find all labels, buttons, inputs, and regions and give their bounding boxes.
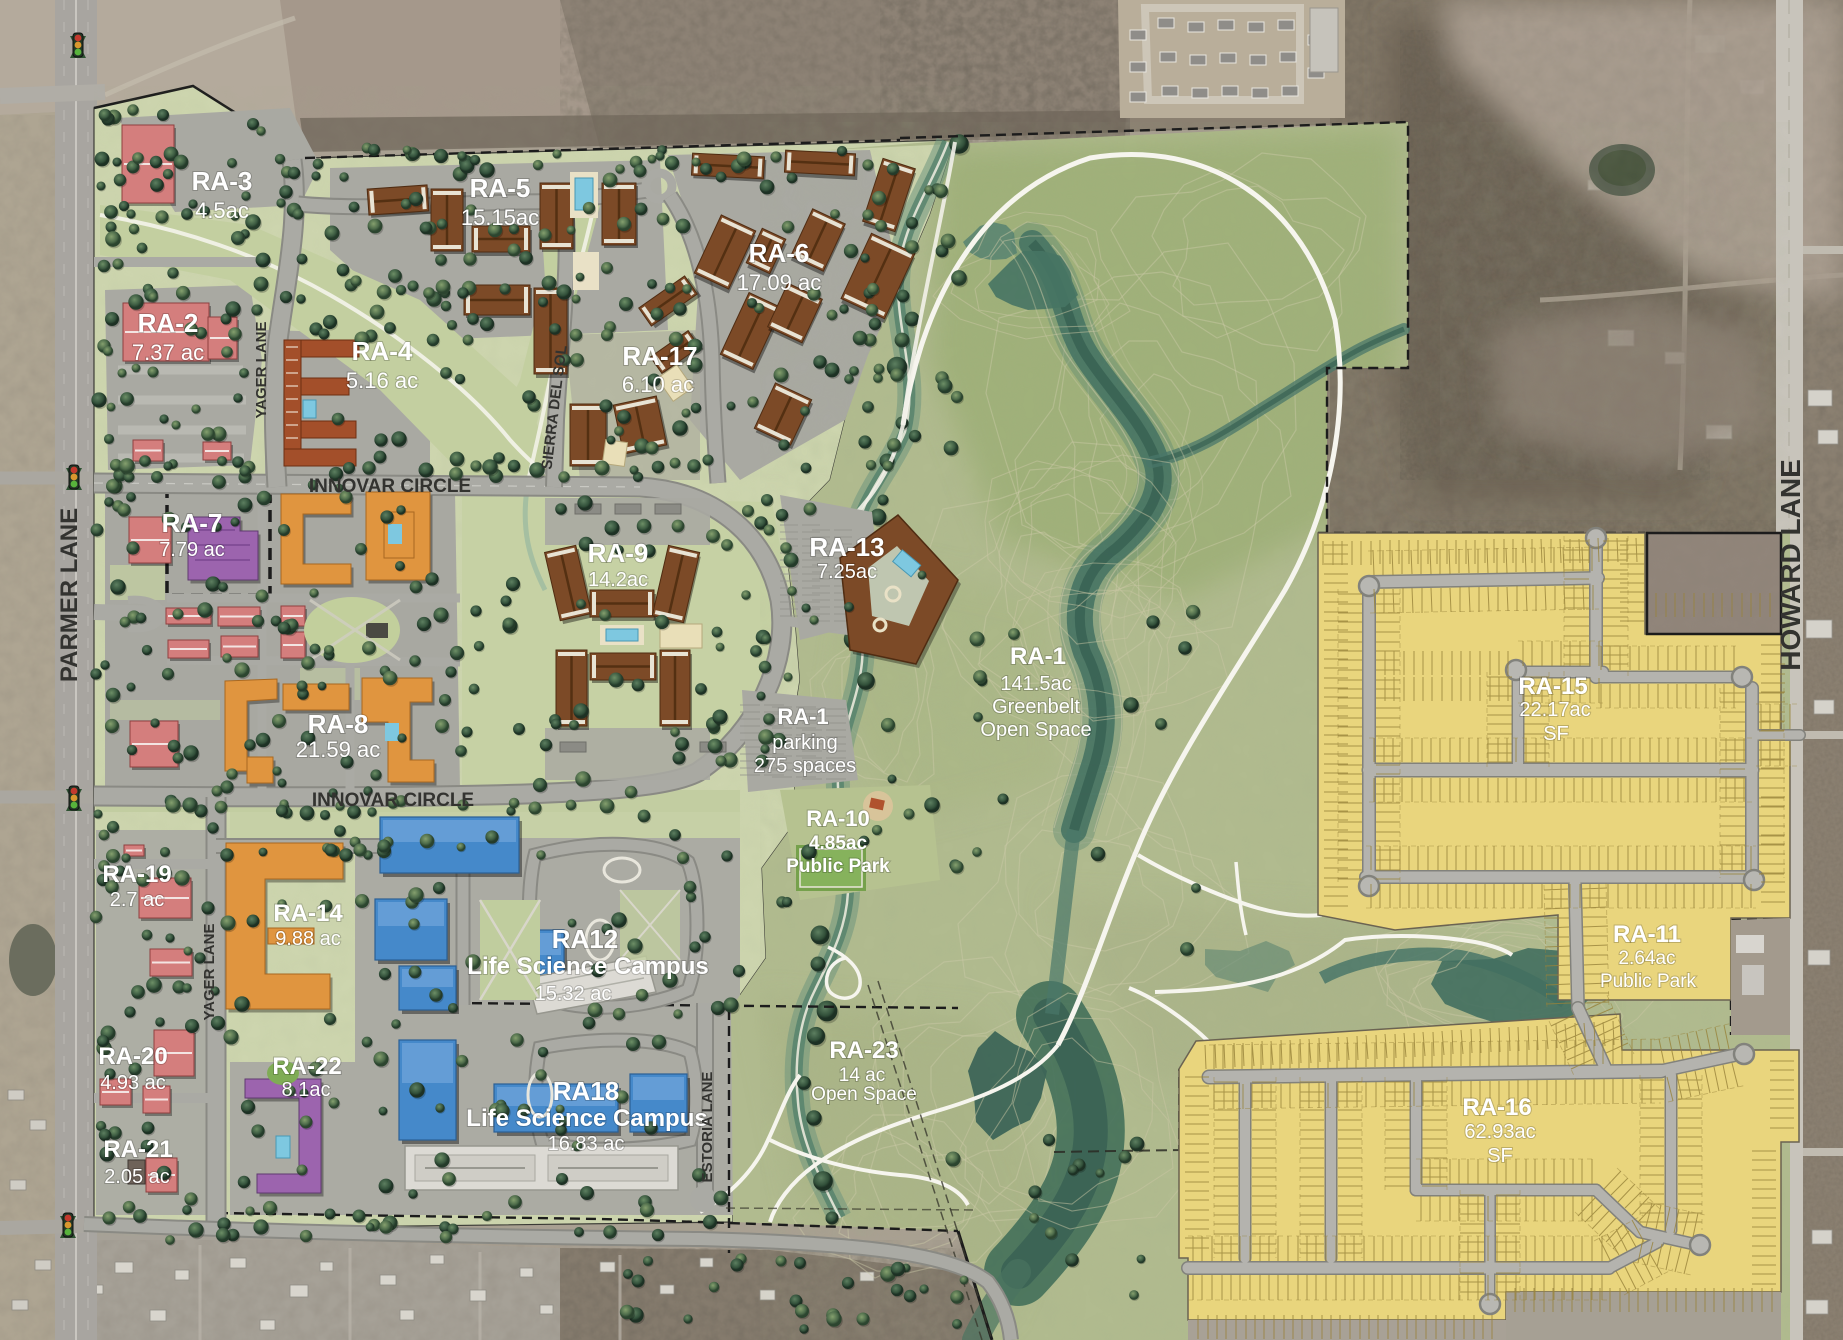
svg-text:7.37 ac: 7.37 ac <box>132 340 204 365</box>
svg-text:RA-13: RA-13 <box>809 532 884 562</box>
svg-text:8.1ac: 8.1ac <box>282 1079 331 1101</box>
svg-text:RA-23: RA-23 <box>829 1037 898 1064</box>
svg-text:Life Science Campus: Life Science Campus <box>467 953 708 980</box>
svg-text:Greenbelt: Greenbelt <box>992 696 1080 718</box>
svg-text:YAGER LANE: YAGER LANE <box>253 322 270 419</box>
svg-text:RA-19: RA-19 <box>102 861 171 888</box>
svg-text:PARMER LANE: PARMER LANE <box>56 508 83 682</box>
svg-text:RA-2: RA-2 <box>138 308 199 338</box>
svg-text:Life Science Campus: Life Science Campus <box>466 1105 707 1132</box>
svg-text:2.05 ac: 2.05 ac <box>104 1166 170 1188</box>
svg-text:4.85ac: 4.85ac <box>809 833 868 854</box>
svg-text:RA-14: RA-14 <box>273 900 343 927</box>
svg-text:15.32 ac: 15.32 ac <box>535 983 612 1005</box>
svg-text:7.25ac: 7.25ac <box>817 561 877 583</box>
svg-text:SF: SF <box>1543 723 1569 745</box>
svg-text:RA-1: RA-1 <box>777 704 828 729</box>
svg-text:SF: SF <box>1487 1145 1513 1167</box>
svg-text:INNOVAR CIRCLE: INNOVAR CIRCLE <box>309 476 471 497</box>
svg-text:22.17ac: 22.17ac <box>1519 699 1590 721</box>
svg-text:17.09 ac: 17.09 ac <box>737 270 821 295</box>
svg-text:Public Park: Public Park <box>1600 971 1697 992</box>
svg-text:RA-6: RA-6 <box>749 238 810 268</box>
svg-text:Open Space: Open Space <box>811 1084 917 1105</box>
svg-text:5.16 ac: 5.16 ac <box>346 368 418 393</box>
svg-text:RA-16: RA-16 <box>1462 1094 1531 1121</box>
svg-text:15.15ac: 15.15ac <box>461 205 539 230</box>
svg-text:9.88 ac: 9.88 ac <box>275 928 341 950</box>
svg-text:4.5ac: 4.5ac <box>195 198 249 223</box>
svg-text:RA-21: RA-21 <box>103 1136 172 1163</box>
svg-text:Open Space: Open Space <box>980 719 1091 741</box>
svg-text:16.83 ac: 16.83 ac <box>548 1133 625 1155</box>
svg-text:4.93 ac: 4.93 ac <box>100 1072 166 1094</box>
svg-text:2.7 ac: 2.7 ac <box>110 889 164 911</box>
svg-text:Public Park: Public Park <box>786 856 890 877</box>
svg-text:RA-20: RA-20 <box>98 1043 167 1070</box>
svg-text:RA-8: RA-8 <box>308 709 369 739</box>
svg-text:21.59 ac: 21.59 ac <box>296 737 380 762</box>
svg-text:YAGER LANE: YAGER LANE <box>201 924 218 1021</box>
svg-text:14.2ac: 14.2ac <box>588 569 648 591</box>
svg-text:RA-11: RA-11 <box>1613 921 1681 948</box>
svg-text:RA-4: RA-4 <box>352 336 413 366</box>
svg-text:ESTORIA LANE: ESTORIA LANE <box>699 1072 716 1183</box>
svg-text:HOWARD LANE: HOWARD LANE <box>1775 459 1806 671</box>
svg-text:6.10 ac: 6.10 ac <box>622 372 694 397</box>
svg-text:RA-5: RA-5 <box>470 173 531 203</box>
svg-text:RA-10: RA-10 <box>806 806 870 831</box>
svg-text:parking: parking <box>772 732 838 754</box>
svg-text:7.79 ac: 7.79 ac <box>159 539 225 561</box>
svg-text:RA12: RA12 <box>552 924 618 954</box>
svg-text:RA-15: RA-15 <box>1518 673 1587 700</box>
svg-text:RA-1: RA-1 <box>1010 643 1066 670</box>
svg-text:INNOVAR CIRCLE: INNOVAR CIRCLE <box>312 790 474 811</box>
svg-text:RA-17: RA-17 <box>622 341 697 371</box>
svg-text:RA-9: RA-9 <box>588 538 649 568</box>
svg-text:RA-7: RA-7 <box>162 508 223 538</box>
svg-text:62.93ac: 62.93ac <box>1464 1121 1535 1143</box>
svg-text:2.64ac: 2.64ac <box>1618 948 1675 969</box>
svg-text:14 ac: 14 ac <box>839 1065 885 1086</box>
svg-text:RA18: RA18 <box>553 1076 619 1106</box>
svg-text:275 spaces: 275 spaces <box>754 755 856 777</box>
svg-text:RA-22: RA-22 <box>272 1053 341 1080</box>
svg-text:RA-3: RA-3 <box>192 166 253 196</box>
svg-text:141.5ac: 141.5ac <box>1000 673 1071 695</box>
